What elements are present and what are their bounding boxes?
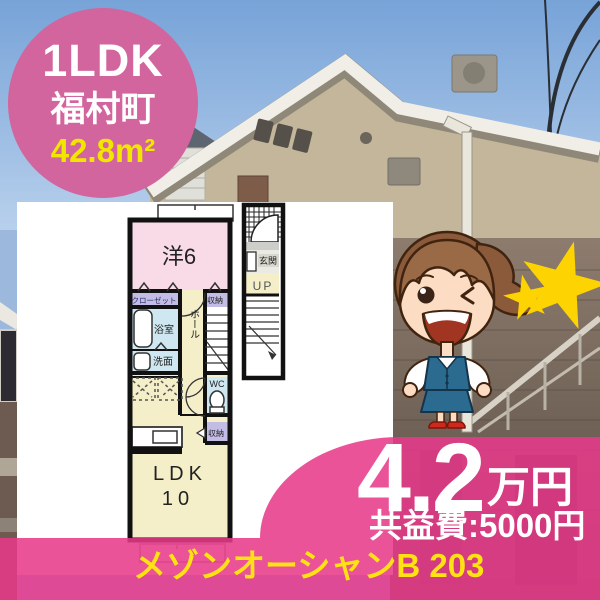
small-window — [238, 176, 268, 204]
round-vent — [360, 132, 372, 144]
floor-area: 42.8m² — [51, 133, 156, 170]
bath-label: 浴室 — [154, 323, 174, 336]
sink-icon — [134, 353, 150, 370]
ldk-label: LDK — [153, 463, 207, 485]
stars — [495, 228, 600, 343]
closet-label: クローゼット — [132, 295, 177, 305]
property-badge: 1LDK 福村町 42.8m² — [8, 8, 198, 198]
genkan-label: 玄関 — [259, 255, 277, 266]
fist-right — [477, 383, 491, 397]
shoe-box — [247, 252, 256, 271]
storage-upper-label: 収納 — [207, 295, 223, 305]
skirt — [421, 390, 473, 412]
town-name: 福村町 — [50, 90, 155, 129]
kitchen-counter — [132, 427, 182, 454]
entrance-stairs — [246, 301, 279, 355]
toilet-icon — [210, 391, 224, 413]
listing-ad: 洋6 クローゼット 収納 浴室 洗面 ホール WC 収納 LDK 10 玄関 U… — [0, 0, 600, 600]
property-name: メゾンオーシャンB 203 — [133, 549, 484, 582]
stairs-arrow — [268, 351, 276, 360]
wc-label: WC — [210, 379, 225, 389]
entrance-step — [246, 242, 279, 250]
neck — [441, 342, 453, 358]
ldk-size-label: 10 — [162, 488, 194, 510]
eye-highlight — [420, 288, 426, 294]
fist-left — [403, 383, 417, 397]
hall-label: ホール — [188, 309, 200, 339]
vent-box-grill — [463, 62, 485, 84]
storage-lower-label: 収納 — [208, 428, 224, 438]
common-fee: 共益費:5000円 — [369, 509, 585, 542]
eye-open — [418, 287, 435, 304]
vent-box-2 — [388, 158, 420, 185]
layout-type: 1LDK — [42, 36, 164, 86]
up-label: UP — [253, 279, 274, 293]
bathtub-icon — [134, 310, 152, 347]
rent-unit: 万円 — [487, 467, 573, 510]
room-main-label: 洋6 — [162, 244, 196, 269]
washroom-label: 洗面 — [153, 356, 173, 368]
